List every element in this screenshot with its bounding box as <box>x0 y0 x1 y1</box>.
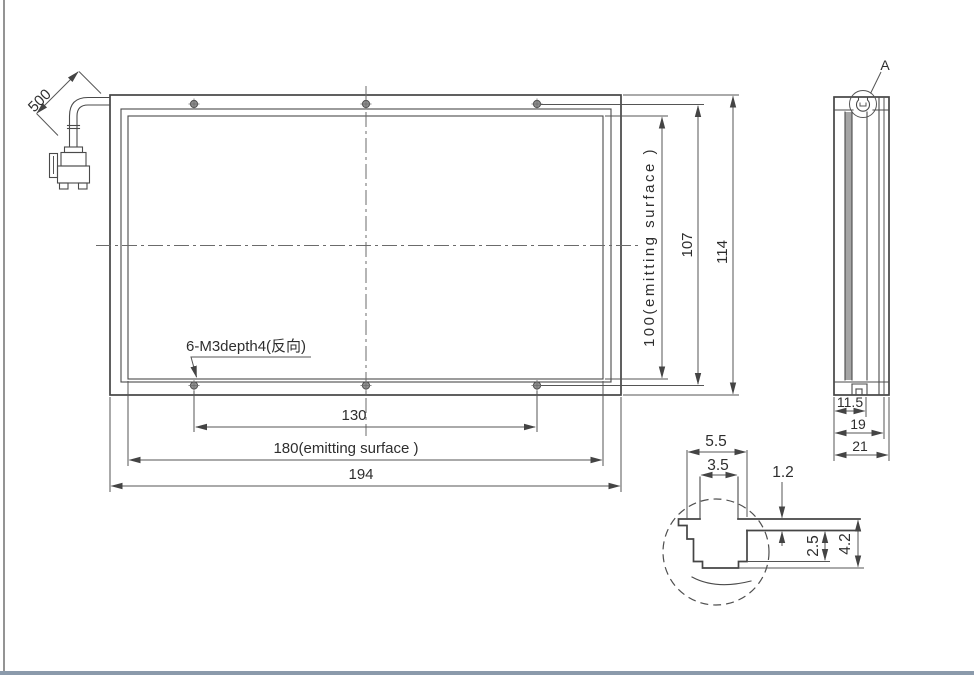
dims-detail: 5.5 3.5 1.2 2.5 4.2 <box>687 433 864 568</box>
dim-label-114: 114 <box>714 240 731 264</box>
dim-label-5-5: 5.5 <box>705 433 727 450</box>
detail-boundary-circle <box>663 499 769 605</box>
dim-label-1-2: 1.2 <box>772 464 794 481</box>
tslot-end-profile <box>857 97 870 111</box>
dims-bottom: 130 180(emitting surface ) 194 <box>110 381 621 492</box>
dim-label-107: 107 <box>679 232 696 257</box>
front-view: 500 6-M3depth4(反向) 130 180(emitting surf… <box>25 72 739 493</box>
dim-label-194: 194 <box>348 466 373 483</box>
dim-label-3-5: 3.5 <box>707 457 729 474</box>
dim-label-4-2: 4.2 <box>837 533 854 555</box>
dim-label-500: 500 <box>25 86 55 116</box>
connector <box>50 147 90 189</box>
detail-a-label: A <box>880 57 890 73</box>
dim-label-130: 130 <box>341 407 366 424</box>
dim-label-21: 21 <box>852 438 868 454</box>
hole-callout-label: 6-M3depth4(反向) <box>186 338 306 355</box>
page-left-edge-line <box>3 0 5 675</box>
technical-drawing: 500 6-M3depth4(反向) 130 180(emitting surf… <box>0 0 974 675</box>
hole-callout: 6-M3depth4(反向) <box>186 338 311 377</box>
side-view: A 11.5 19 21 <box>834 57 890 461</box>
cable <box>68 98 111 148</box>
dims-side: 11.5 19 21 <box>834 394 889 461</box>
dim-label-2-5: 2.5 <box>805 535 822 557</box>
cad-drawing-page: 500 6-M3depth4(反向) 130 180(emitting surf… <box>0 0 974 675</box>
tslot-section <box>679 477 861 585</box>
page-bottom-bar <box>0 671 974 675</box>
side-outer-outline <box>834 97 889 395</box>
detail-a-circle <box>850 91 877 118</box>
side-shaded-strip <box>846 112 853 380</box>
dim-label-180-emitting: 180(emitting surface ) <box>273 440 418 457</box>
dim-cable-length: 500 <box>25 72 101 136</box>
dim-label-11-5: 11.5 <box>837 394 863 410</box>
dim-label-100-emitting: 100(emitting surface ) <box>641 147 658 347</box>
dim-label-19: 19 <box>850 416 866 432</box>
side-profile-lines <box>834 97 889 395</box>
